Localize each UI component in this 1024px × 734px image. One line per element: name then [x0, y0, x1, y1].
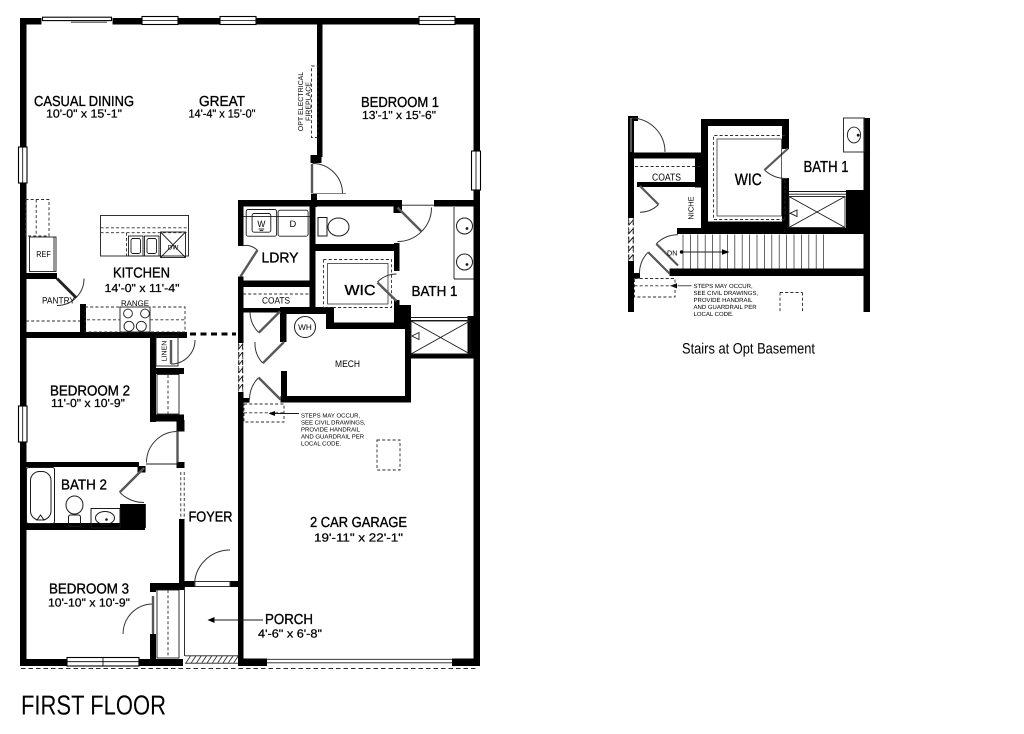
svg-text:PROVIDE HANDRAIL: PROVIDE HANDRAIL [694, 297, 754, 304]
svg-text:19'-11" x 22'-1": 19'-11" x 22'-1" [314, 532, 403, 545]
svg-text:COATS: COATS [262, 296, 290, 306]
svg-text:WH: WH [298, 323, 312, 332]
svg-text:DN: DN [667, 249, 677, 258]
svg-text:STEPS MAY OCCUR,: STEPS MAY OCCUR, [694, 283, 753, 290]
svg-text:10'-10" x 10'-9": 10'-10" x 10'-9" [48, 597, 130, 610]
svg-text:BEDROOM 3: BEDROOM 3 [49, 582, 129, 598]
svg-text:14'-4" x 15'-0": 14'-4" x 15'-0" [189, 108, 256, 121]
svg-text:BATH 2: BATH 2 [61, 478, 107, 494]
svg-text:PANTRY: PANTRY [42, 296, 75, 306]
svg-text:COATS: COATS [652, 173, 681, 184]
svg-text:D: D [290, 219, 297, 229]
svg-text:SEE CIVIL DRAWINGS,: SEE CIVIL DRAWINGS, [694, 290, 759, 297]
svg-text:LINEN: LINEN [162, 341, 169, 362]
svg-text:OPT ELECTRICAL: OPT ELECTRICAL [298, 72, 305, 131]
svg-text:BATH 1: BATH 1 [804, 159, 849, 176]
svg-text:2 CAR GARAGE: 2 CAR GARAGE [310, 515, 407, 531]
svg-text:REF: REF [36, 249, 51, 259]
svg-text:DW: DW [168, 245, 180, 252]
svg-text:SEE CIVIL DRAWINGS,: SEE CIVIL DRAWINGS, [301, 420, 366, 427]
svg-text:LOCAL CODE.: LOCAL CODE. [694, 311, 734, 318]
svg-text:PORCH: PORCH [265, 612, 313, 628]
svg-text:WIC: WIC [735, 171, 762, 189]
svg-text:KITCHEN: KITCHEN [113, 266, 170, 282]
svg-text:11'-0" x 10'-9": 11'-0" x 10'-9" [51, 397, 125, 410]
svg-text:STEPS MAY OCCUR,: STEPS MAY OCCUR, [301, 413, 360, 420]
svg-text:NICHE: NICHE [687, 196, 696, 219]
svg-text:PROVIDE HANDRAIL: PROVIDE HANDRAIL [301, 427, 361, 434]
svg-text:4'-6" x 6'-8": 4'-6" x 6'-8" [258, 628, 322, 641]
svg-text:W: W [257, 219, 265, 229]
svg-text:FOYER: FOYER [189, 510, 233, 526]
svg-text:AND GUARDRAIL PER: AND GUARDRAIL PER [694, 304, 758, 311]
svg-text:MECH: MECH [335, 359, 360, 370]
svg-text:LOCAL CODE.: LOCAL CODE. [301, 441, 341, 448]
svg-text:LDRY: LDRY [262, 251, 299, 267]
svg-text:RANGE: RANGE [121, 299, 149, 308]
svg-text:13'-1" x 15'-6": 13'-1" x 15'-6" [362, 109, 436, 122]
svg-text:AND GUARDRAIL PER: AND GUARDRAIL PER [301, 434, 365, 441]
svg-text:FIRST FLOOR: FIRST FLOOR [21, 690, 166, 721]
svg-text:WIC: WIC [345, 283, 376, 299]
svg-text:10'-0" x 15'-1": 10'-0" x 15'-1" [46, 108, 122, 121]
svg-text:BATH 1: BATH 1 [412, 284, 458, 300]
svg-text:Stairs at Opt Basement: Stairs at Opt Basement [682, 341, 816, 358]
svg-text:14'-0" x 11'-4": 14'-0" x 11'-4" [105, 282, 180, 295]
svg-text:FIREPLACE: FIREPLACE [306, 82, 313, 121]
